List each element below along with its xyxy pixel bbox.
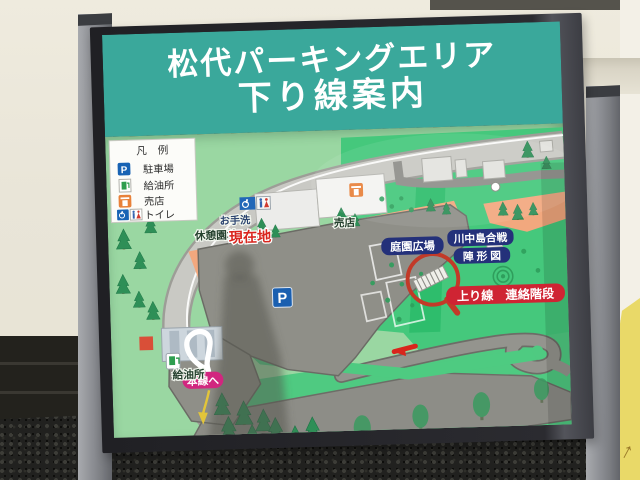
toilet-icon [239, 196, 270, 210]
svg-text:P: P [121, 165, 128, 176]
fuel-pump-icon [119, 179, 131, 192]
wall-column [620, 0, 640, 320]
roof-edge [430, 0, 640, 10]
restroom-label: お手洗 [219, 213, 251, 227]
garden-plaza-badge: 庭園広場 [390, 239, 435, 254]
sign-header: 松代パーキングエリア 下り線案内 [102, 21, 563, 137]
shop-icon [118, 195, 131, 208]
legend-label-toilet: トイレ [144, 210, 175, 222]
shop-label: 売店 [334, 216, 356, 230]
legend-title: 凡 例 [136, 144, 168, 158]
parking-symbol: P [277, 291, 287, 307]
board-face: 松代パーキングエリア 下り線案内 [102, 21, 572, 437]
battle-map-badge-line1: 川中島合戦 [453, 231, 508, 246]
legend-label-shop: 売店 [144, 194, 165, 208]
map-drawing: P 庭園広場 川中島合戦 陣 形 図 上り線 連絡階段 本線へ [105, 123, 572, 437]
legend-label-fuel: 給油所 [143, 179, 174, 193]
parking-sign: P [272, 287, 292, 307]
parking-icon: P [118, 163, 131, 177]
gas-station-label: 給油所 [172, 368, 205, 382]
guide-signboard: 松代パーキングエリア 下り線案内 [90, 13, 594, 453]
area-map: P 庭園広場 川中島合戦 陣 形 図 上り線 連絡階段 本線へ [105, 123, 572, 437]
map-legend: 凡 例 P 駐車場 給油所 [109, 138, 197, 222]
photo-of-parking-area-guide-sign: ↑ 松代パーキングエリア 下り線案内 [0, 0, 640, 480]
up-line-stairs-badge: 上り線 連絡階段 [457, 286, 556, 304]
fuel-pump-icon [166, 353, 180, 369]
current-location-label: 現在地 [229, 228, 272, 245]
legend-label-parking: 駐車場 [143, 162, 174, 176]
battle-map-badge-line2: 陣 形 図 [463, 249, 502, 263]
sign-title-line2: 下り線案内 [237, 76, 428, 119]
